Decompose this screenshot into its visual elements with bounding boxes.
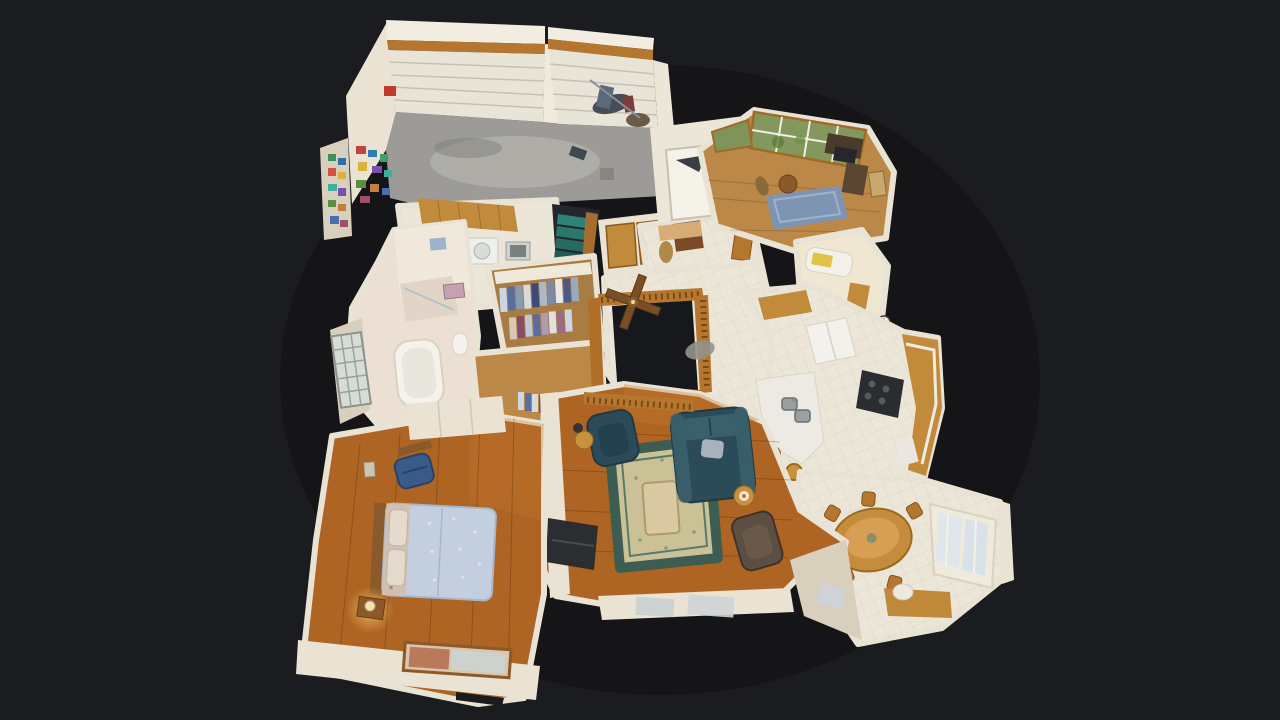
office-chair bbox=[779, 175, 797, 193]
desk-chair bbox=[893, 584, 913, 600]
exterior-window-glimpse bbox=[635, 597, 674, 618]
faucet bbox=[792, 398, 796, 402]
bed bbox=[370, 503, 497, 601]
wall-art bbox=[868, 171, 886, 197]
soaking-tub bbox=[393, 338, 446, 408]
kitchen-sink-basin bbox=[795, 410, 810, 422]
garage-door-1 bbox=[387, 50, 545, 122]
concrete-stain bbox=[434, 138, 502, 158]
toilet bbox=[452, 333, 468, 355]
bay-window bbox=[930, 504, 996, 588]
coffee-table bbox=[642, 481, 680, 535]
table-decor bbox=[742, 494, 746, 498]
dollhouse-scene bbox=[0, 0, 1280, 720]
window-foliage bbox=[772, 136, 784, 148]
pillow bbox=[388, 509, 408, 546]
exterior-window-glimpse bbox=[687, 594, 734, 617]
mirror bbox=[429, 237, 446, 251]
side-table bbox=[575, 431, 593, 449]
dollhouse-3d-viewport[interactable] bbox=[0, 0, 1280, 720]
tv-console bbox=[546, 518, 598, 570]
dryer-door bbox=[474, 243, 490, 259]
pillow bbox=[386, 549, 406, 586]
framed-artwork bbox=[403, 642, 511, 677]
closet-door-left bbox=[606, 223, 637, 268]
master-bedroom bbox=[296, 396, 544, 706]
wall-art bbox=[443, 283, 464, 299]
table-lamp bbox=[573, 423, 583, 433]
window-foliage bbox=[795, 135, 805, 145]
throw-pillow bbox=[700, 439, 724, 459]
wall-picture bbox=[364, 462, 376, 478]
laundry-sink-basin bbox=[510, 245, 526, 257]
armchair bbox=[585, 408, 641, 468]
plant-stand bbox=[659, 241, 673, 263]
lamp bbox=[365, 601, 375, 611]
